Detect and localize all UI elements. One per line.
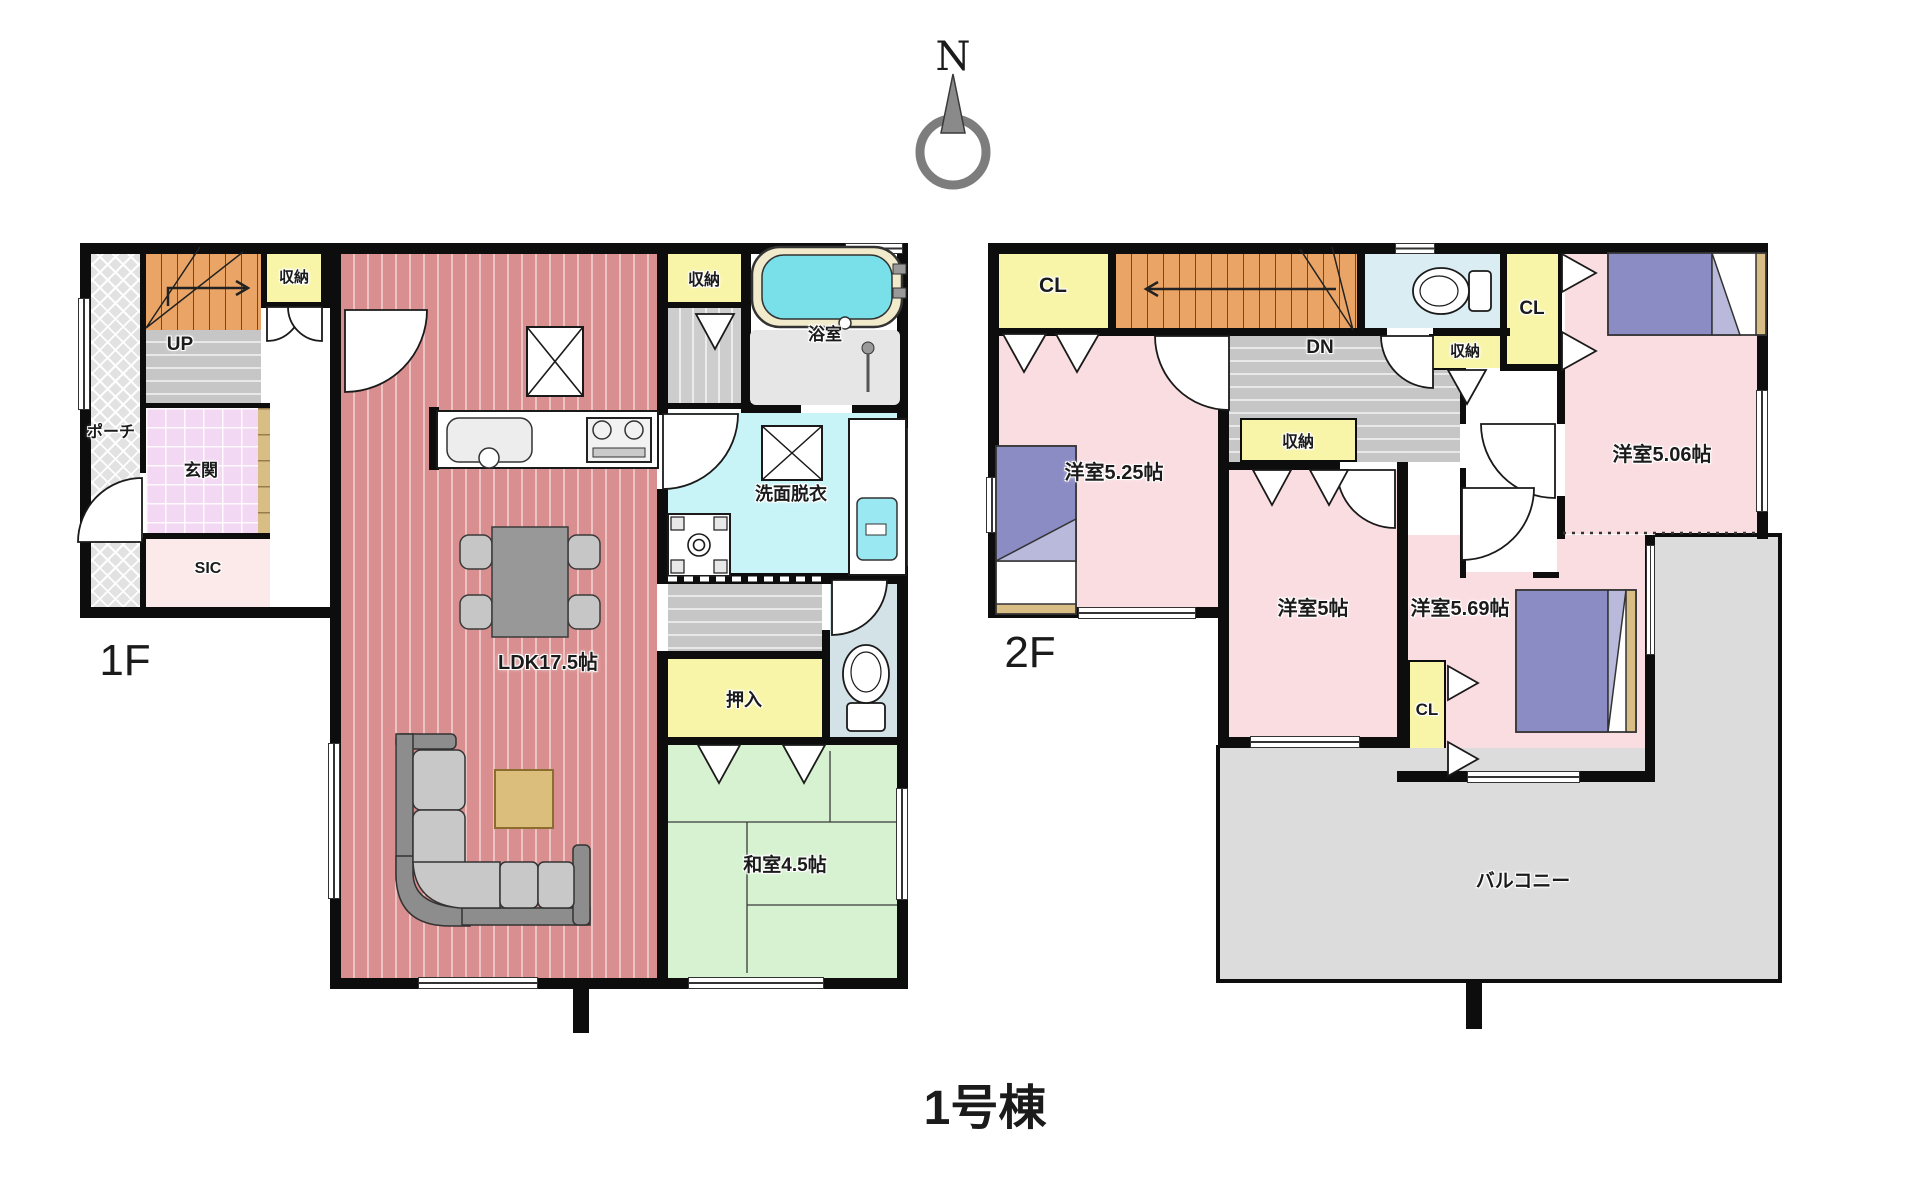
room-label-dn: DN [1294,337,1346,359]
bed-icon [1608,253,1766,335]
washing-machine-icon [668,514,730,576]
room-label-washitsu: 和室4.5帖 [722,850,848,877]
vanity-icon [762,426,822,480]
dining-table-icon [460,527,600,637]
room-label-cl-b: CL [1508,298,1556,320]
refrigerator-icon [527,327,583,396]
compass-north-label: N [930,34,976,80]
room-label-storage-a-2f: 収納 [1432,340,1498,361]
room-label-cl-a: CL [1026,274,1080,298]
plan-line-art [0,0,1907,1192]
kitchen-counter-icon [437,411,658,468]
room-label-bath: 浴室 [794,320,856,345]
room-label-5: 洋室5帖 [1258,592,1368,621]
room-label-washroom: 洗面脱衣 [724,480,858,506]
living-table-icon [495,770,553,828]
floor-label-2f: 2F [992,628,1068,678]
north-compass-icon [920,74,986,185]
room-label-storage-b-1f: 収納 [671,266,737,290]
room-label-cl-c: CL [1408,700,1446,720]
room-label-balcony: バルコニー [1428,866,1618,893]
room-label-entry: 玄関 [168,456,234,481]
room-label-up: UP [152,334,208,356]
room-label-storage-b-2f: 収納 [1262,428,1334,452]
sofa-icon [396,734,590,926]
stairs-arrow-2f [1146,247,1353,330]
toilet-icon [1413,268,1491,314]
floor-plan-canvas: N ポーチ UP 玄関 SIC 収納 収納 浴室 洗面脱衣 LDK17.5帖 押… [0,0,1907,1192]
floor-label-1f: 1F [90,636,160,686]
room-label-sic: SIC [176,560,240,578]
room-label-ldk: LDK17.5帖 [478,646,618,675]
page-title: 1号棟 [810,1068,1160,1138]
stairs-arrow-1f [146,247,248,328]
room-label-506: 洋室5.06帖 [1592,438,1732,467]
room-label-oshiire: 押入 [706,686,782,712]
bed-icon [1516,590,1636,732]
door-arcs-2f [1155,336,1555,560]
room-label-525: 洋室5.25帖 [1044,456,1184,485]
toilet-icon [843,645,889,731]
room-label-569: 洋室5.69帖 [1390,592,1530,621]
room-label-porch: ポーチ [80,418,142,442]
room-label-storage-a-1f: 収納 [268,266,320,287]
